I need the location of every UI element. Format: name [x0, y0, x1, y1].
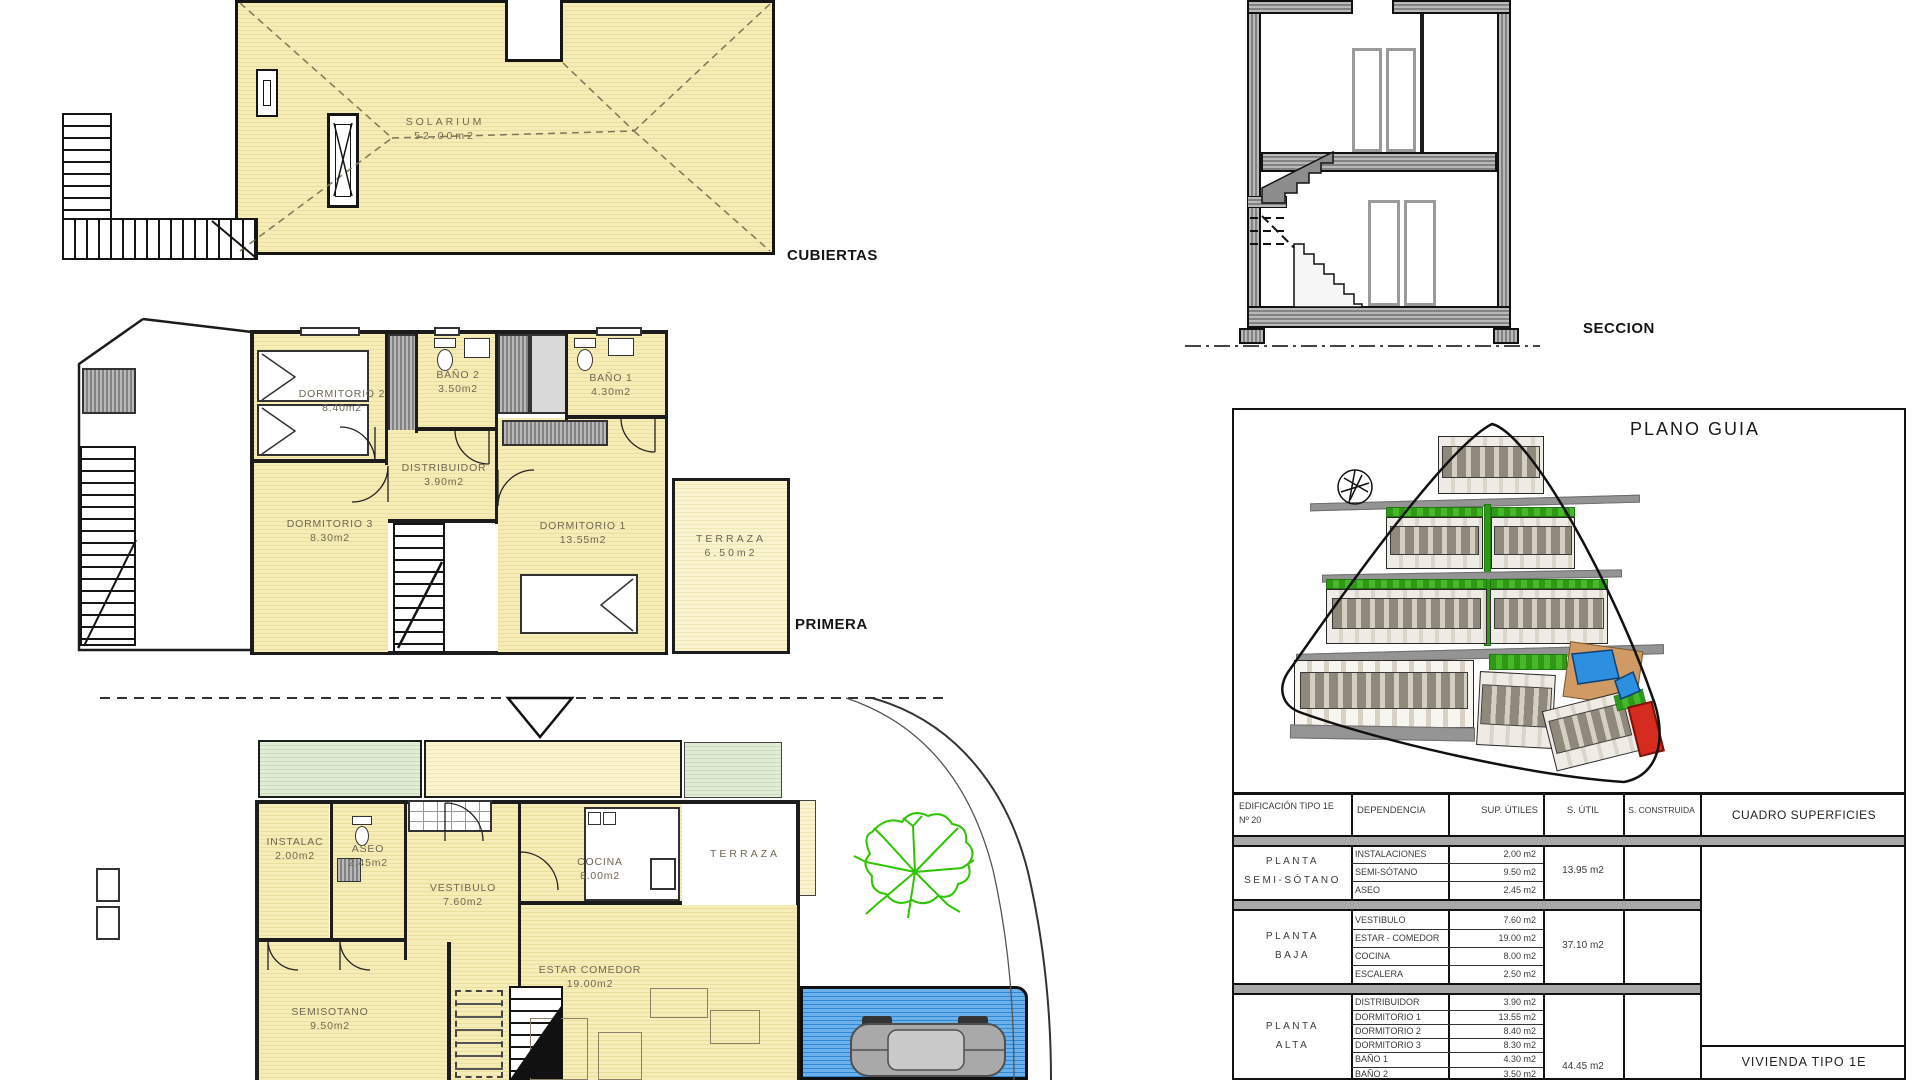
surfaces-table: EDIFICACIÓN TIPO 1E Nº 20 DEPENDENCIA SU…	[1232, 793, 1906, 1080]
table-cell-area: 2.50 m2	[1450, 965, 1536, 983]
section-partition	[1420, 14, 1424, 152]
room-name: COCINA	[577, 856, 623, 868]
house-row	[1491, 517, 1575, 569]
room-name: BAÑO 1	[589, 372, 632, 384]
section-mid-slab	[1261, 152, 1497, 172]
section-door	[1352, 48, 1382, 152]
wall	[520, 901, 682, 905]
first-floor-title: PRIMERA	[795, 616, 868, 633]
garden-hatch-right	[684, 742, 782, 798]
room-name: DORMITORIO 2	[299, 388, 385, 400]
house-row	[1326, 589, 1487, 644]
wall	[568, 415, 665, 419]
building-line1: EDIFICACIÓN TIPO 1E	[1239, 801, 1334, 811]
roof-chimney-large-flue	[335, 124, 351, 197]
table-cell-area: 8.30 m2	[1450, 1038, 1536, 1052]
table-cell-area: 3.50 m2	[1450, 1067, 1536, 1080]
table-title: CUADRO SUPERFICIES	[1700, 808, 1906, 822]
room-label-distribuidor: DISTRIBUIDOR 3.90m2	[389, 462, 499, 489]
room-name: INSTALAC	[267, 836, 324, 848]
table-cell-name: BAÑO 1	[1355, 1052, 1445, 1067]
table-cell-area: 2.00 m2	[1450, 845, 1536, 863]
room-label-estar: ESTAR COMEDOR 19.00m2	[515, 964, 665, 991]
room-label-dormitorio3: DORMITORIO 3 8.30m2	[270, 518, 390, 545]
table-cell-area: 8.00 m2	[1450, 947, 1536, 965]
garden-strip	[1386, 507, 1483, 517]
building-line2: Nº 20	[1239, 815, 1261, 825]
table-floor-group: PLANTA BAJA	[1236, 927, 1349, 965]
table-band	[1234, 835, 1906, 847]
floor-line1: PLANTA	[1266, 1021, 1319, 1032]
room-area: 8.30m2	[310, 532, 350, 544]
room-name: SOLARIUM	[406, 116, 485, 128]
table-header-dependencia: DEPENDENCIA	[1357, 805, 1445, 816]
table-header-s-construida: S. CONSTRUIDA	[1623, 805, 1700, 815]
house-row	[1294, 660, 1474, 728]
table-cell-name: INSTALACIONES	[1355, 845, 1445, 863]
furniture	[530, 1018, 588, 1080]
room-name: BAÑO 2	[436, 369, 479, 381]
room-label-terraza-p1: TERRAZA 6.50m2	[676, 533, 786, 560]
house-row	[1438, 436, 1544, 494]
room-name: TERRAZA	[696, 533, 766, 545]
room-label-cocina: COCINA 8.00m2	[545, 856, 655, 883]
section-roof-slab	[1247, 0, 1353, 14]
section-door	[1404, 200, 1436, 306]
room-label-aseo: ASEO 2.45m2	[332, 843, 404, 870]
toilet-tank	[352, 816, 372, 825]
section-roof-slab	[1392, 0, 1511, 14]
room-name: DORMITORIO 3	[287, 518, 373, 530]
sink	[464, 338, 490, 358]
room-label-dormitorio2: DORMITORIO 2 8.40m2	[282, 388, 402, 415]
hob	[588, 812, 601, 825]
section-door	[1386, 48, 1416, 152]
room-label-vestibulo: VESTIBULO 7.60m2	[408, 882, 518, 909]
table-cell-s-util: 44.45 m2	[1545, 1061, 1621, 1072]
table-cell-area: 13.55 m2	[1450, 1010, 1536, 1024]
window	[434, 327, 460, 336]
room-area: 8.00m2	[580, 870, 620, 882]
section-footing	[1493, 328, 1519, 344]
tree	[854, 813, 974, 918]
stair-core-panel	[530, 334, 568, 414]
garden-strip	[1326, 579, 1487, 589]
section-door	[1368, 200, 1400, 306]
room-area: 7.60m2	[443, 896, 483, 908]
table-footer-line	[1700, 1045, 1906, 1047]
furniture	[650, 988, 708, 1018]
balcony-stair	[80, 446, 136, 646]
section-floor-slab	[1247, 306, 1511, 328]
site-plan-title: PLANO GUIA	[1630, 419, 1760, 440]
room-name: DISTRIBUIDOR	[402, 462, 487, 474]
room-name: SEMISOTANO	[291, 1006, 368, 1018]
furniture	[598, 1032, 642, 1080]
floor-line2: BAJA	[1275, 950, 1310, 961]
balcony-ledge-hatch	[502, 420, 608, 446]
section-lower-steps	[1294, 244, 1362, 307]
room-area: 6.50m2	[704, 547, 757, 559]
window	[596, 327, 642, 336]
room-name: VESTIBULO	[430, 882, 496, 894]
roof-notch-arrow	[508, 698, 572, 737]
balcony-window-hatch	[82, 368, 136, 414]
room-label-dormitorio1: DORMITORIO 1 13.55m2	[523, 520, 643, 547]
floor-line2: ALTA	[1276, 1040, 1310, 1051]
room-area: 4.30m2	[591, 386, 631, 398]
table-cell-area: 3.90 m2	[1450, 995, 1536, 1010]
roof-plan-title: CUBIERTAS	[787, 247, 878, 264]
table-header-building: EDIFICACIÓN TIPO 1E Nº 20	[1239, 800, 1349, 827]
table-cell-name: ASEO	[1355, 881, 1445, 899]
table-cell-area: 8.40 m2	[1450, 1024, 1536, 1038]
toilet-bowl	[577, 349, 593, 371]
table-cell-area: 9.50 m2	[1450, 863, 1536, 881]
table-band	[1234, 899, 1700, 911]
room-name: ASEO	[352, 843, 384, 855]
roof-chimney-small	[256, 69, 278, 117]
wall	[418, 427, 498, 431]
floor-line1: PLANTA	[1266, 931, 1319, 942]
wall	[404, 804, 407, 960]
furniture	[710, 1010, 760, 1044]
table-floor-group: PLANTA ALTA	[1236, 1017, 1349, 1055]
wall	[330, 804, 333, 938]
window	[300, 327, 360, 336]
room-area: 13.55m2	[560, 534, 606, 546]
section-wall-left	[1247, 0, 1261, 328]
room-name: TERRAZA	[710, 848, 780, 860]
table-cell-name: BAÑO 2	[1355, 1067, 1445, 1080]
roof-stair-horizontal	[62, 218, 258, 260]
table-cell-area: 7.60 m2	[1450, 911, 1536, 929]
room-label-solarium: SOLARIUM 52.00m2	[385, 116, 505, 143]
architectural-plan-sheet: SOLARIUM 52.00m2 CUBIERTAS DORMITORIO 2 …	[0, 0, 1920, 1080]
table-header-sup-utiles: SUP. ÚTILES	[1450, 805, 1538, 816]
terrace-strip-green	[258, 740, 422, 798]
porch-step	[96, 868, 120, 902]
hob	[603, 812, 616, 825]
section-landing	[1247, 196, 1287, 208]
room-label-bano2: BAÑO 2 3.50m2	[413, 369, 503, 396]
room-label-semisotano: SEMISOTANO 9.50m2	[275, 1006, 385, 1033]
roof-chimney-large	[327, 113, 359, 208]
table-cell-name: SEMI-SÓTANO	[1355, 863, 1445, 881]
table-cell-area: 19.00 m2	[1450, 929, 1536, 947]
toilet-bowl	[437, 349, 453, 371]
table-cell-area: 2.45 m2	[1450, 881, 1536, 899]
table-footer: VIVIENDA TIPO 1E	[1704, 1055, 1904, 1069]
pool	[800, 986, 1028, 1080]
room-name: DORMITORIO 1	[540, 520, 626, 532]
table-cell-s-util: 13.95 m2	[1545, 865, 1621, 876]
first-floor-stairwell	[393, 523, 445, 653]
garden-strip	[1491, 507, 1575, 517]
table-band	[1234, 983, 1700, 995]
room-label-bano1: BAÑO 1 4.30m2	[566, 372, 656, 399]
sink	[608, 338, 634, 356]
skylight	[408, 800, 492, 832]
table-floor-group: PLANTA SEMI-SÓTANO	[1236, 852, 1349, 890]
toilet-tank	[434, 338, 456, 348]
roof-chimney-small-flue	[263, 80, 271, 106]
room-label-instalac: INSTALAC 2.00m2	[258, 836, 332, 863]
room-dormitorio3	[254, 462, 388, 652]
house-row	[1386, 517, 1483, 569]
table-cell-s-util: 37.10 m2	[1545, 940, 1621, 951]
terrace-strip-yellow	[424, 740, 682, 798]
garden-strip	[1490, 579, 1608, 589]
porch-step	[96, 906, 120, 940]
room-area: 3.90m2	[424, 476, 464, 488]
table-cell-name: DORMITORIO 3	[1355, 1038, 1445, 1052]
table-cell-area: 4.30 m2	[1450, 1052, 1536, 1067]
house-row	[1490, 589, 1608, 644]
table-cell-name: COCINA	[1355, 947, 1445, 965]
wall	[447, 942, 451, 1080]
section-footing	[1239, 328, 1265, 344]
wall	[259, 938, 405, 942]
room-area: 9.50m2	[310, 1020, 350, 1032]
lawn	[1489, 654, 1567, 670]
room-area: 8.40m2	[322, 402, 362, 414]
floor-line1: PLANTA	[1266, 856, 1319, 867]
table-cell-name: DORMITORIO 1	[1355, 1010, 1445, 1024]
room-area: 2.45m2	[348, 857, 388, 869]
section-stair-dashed	[1262, 216, 1352, 305]
room-label-terraza-gf: TERRAZA	[690, 848, 800, 862]
table-cell-name: ESTAR - COMEDOR	[1355, 929, 1445, 947]
room-terraza-p1	[672, 478, 790, 654]
table-cell-name: ESCALERA	[1355, 965, 1445, 983]
room-area: 19.00m2	[567, 978, 613, 990]
room-instalac	[259, 804, 329, 938]
section-title: SECCION	[1583, 320, 1655, 337]
bed	[520, 574, 638, 634]
table-cell-name: VESTIBULO	[1355, 911, 1445, 929]
room-area: 2.00m2	[275, 850, 315, 862]
table-header-s-util: S. ÚTIL	[1543, 805, 1623, 816]
floor-line2: SEMI-SÓTANO	[1244, 875, 1341, 886]
stair-flight-dashed	[455, 990, 503, 1078]
toilet-tank	[574, 338, 596, 348]
roof-notch	[505, 0, 563, 62]
wall	[254, 459, 388, 463]
section-wall-right	[1497, 0, 1511, 328]
room-area: 3.50m2	[438, 383, 478, 395]
room-name: ESTAR COMEDOR	[539, 964, 641, 976]
room-area: 52.00m2	[414, 130, 476, 142]
table-cell-name: DORMITORIO 2	[1355, 1024, 1445, 1038]
table-cell-name: DISTRIBUIDOR	[1355, 995, 1445, 1010]
